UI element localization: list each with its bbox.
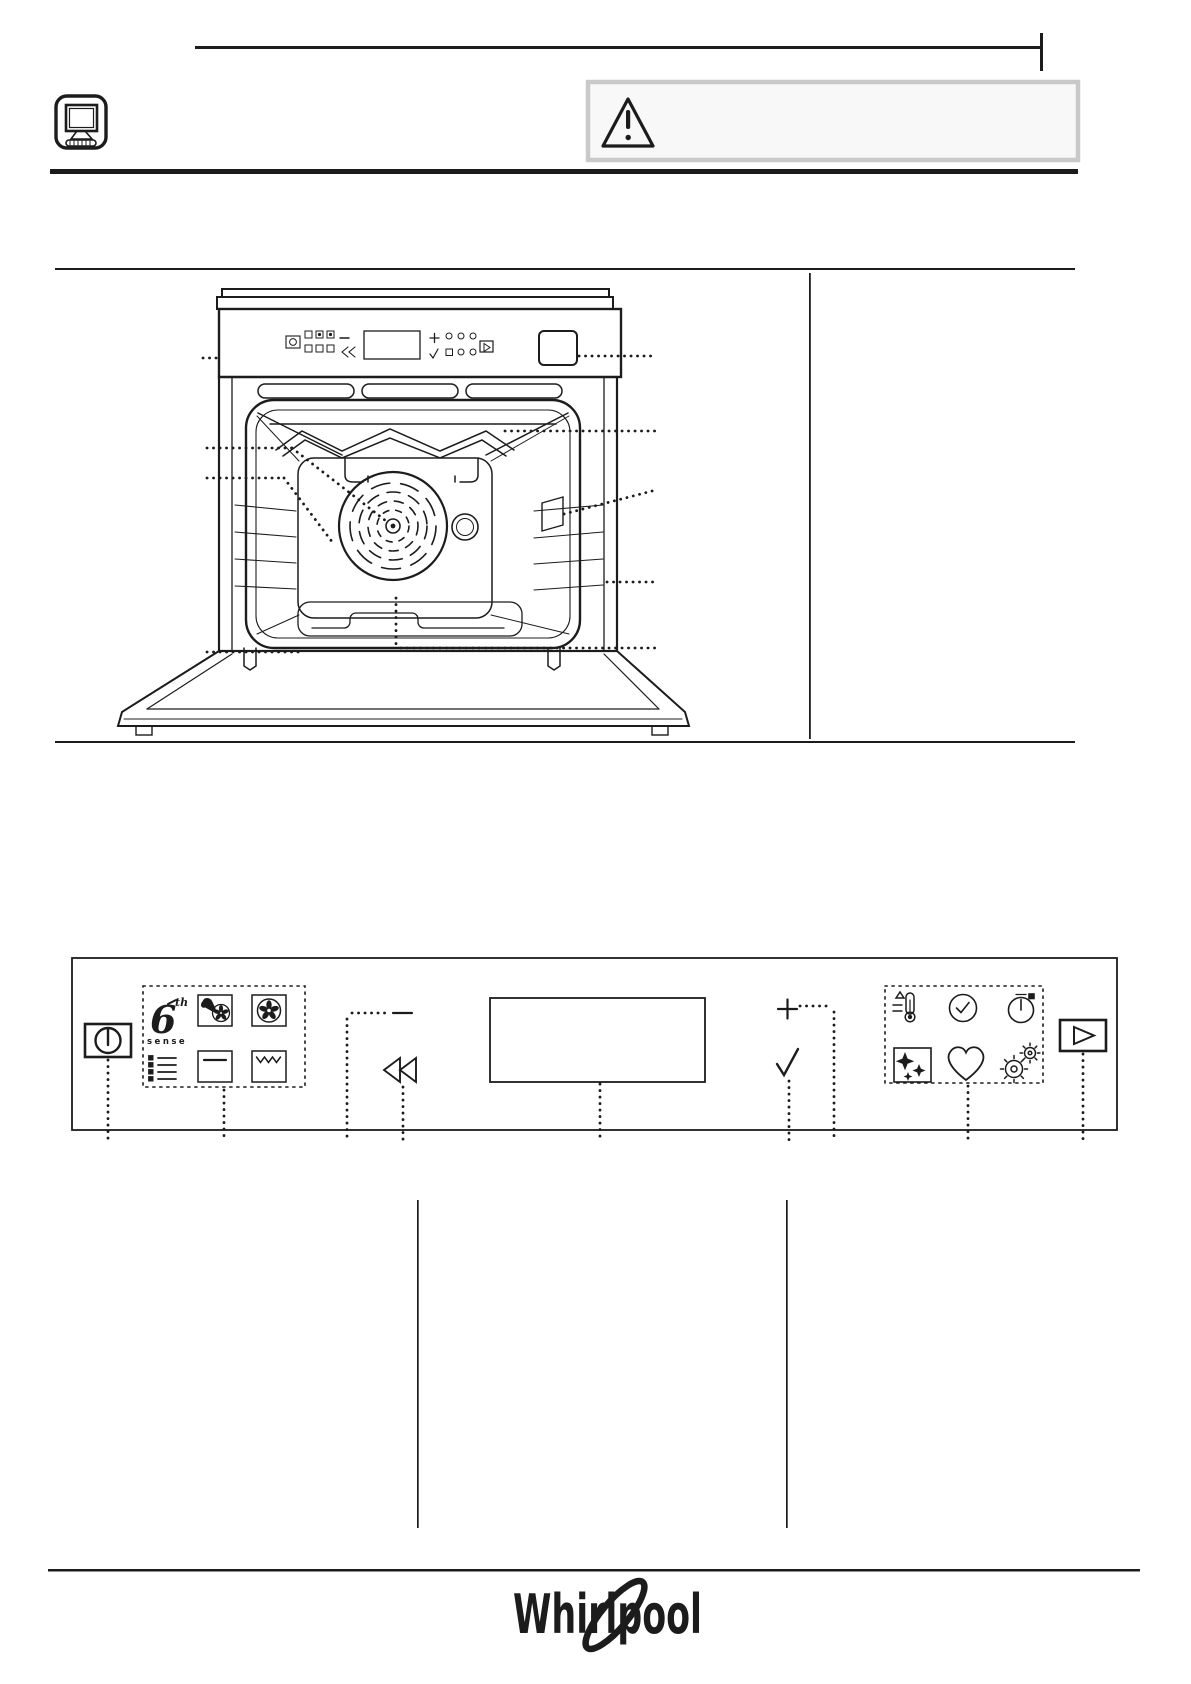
vent-slots bbox=[258, 384, 562, 398]
grill-icon bbox=[252, 1051, 286, 1082]
display-window bbox=[490, 998, 705, 1082]
confirm-button bbox=[777, 1049, 798, 1075]
panel-outline bbox=[72, 958, 1117, 1130]
svg-text:sense: sense bbox=[147, 1037, 187, 1047]
functions-group: 6 th sense bbox=[143, 986, 305, 1087]
svg-text:th: th bbox=[175, 996, 188, 1009]
temperature-icon bbox=[893, 992, 915, 1022]
oven-door bbox=[118, 651, 689, 735]
top-rule bbox=[195, 46, 1042, 49]
menu-list-icon bbox=[149, 1056, 176, 1081]
oven-cavity bbox=[246, 400, 580, 648]
diagram-column-divider bbox=[809, 273, 811, 739]
self-clean-icon bbox=[894, 1048, 931, 1082]
whirlpool-logo: Whirlpool bbox=[513, 1574, 702, 1657]
legend-column-divider-left bbox=[417, 1200, 419, 1528]
section-rule-1 bbox=[55, 268, 1075, 270]
page-header bbox=[50, 33, 1078, 174]
oven-control-strip bbox=[219, 309, 621, 377]
bottom-heating-element bbox=[298, 602, 522, 636]
oven-lamp bbox=[452, 514, 478, 540]
favourites-icon bbox=[949, 1047, 984, 1080]
fan-cooking-icon bbox=[252, 995, 286, 1026]
section-rule-2 bbox=[55, 741, 1075, 743]
svg-text:6: 6 bbox=[150, 997, 176, 1042]
grill-heating-element bbox=[258, 413, 568, 482]
back-button bbox=[384, 1058, 416, 1082]
control-panel-diagram: 6 th sense bbox=[72, 958, 1117, 1141]
top-rule-tick bbox=[1040, 33, 1043, 71]
fan-with-round-plate bbox=[339, 472, 447, 580]
options-group bbox=[885, 986, 1043, 1083]
legend-column-divider-right bbox=[786, 1200, 788, 1528]
assisted-cooking-icon bbox=[198, 995, 232, 1026]
start-button bbox=[1060, 1020, 1106, 1051]
monitor-icon bbox=[56, 96, 106, 148]
side-opening bbox=[542, 497, 563, 531]
conventional-heat-icon bbox=[198, 1051, 232, 1082]
mini-display bbox=[364, 331, 420, 359]
footer-rule bbox=[48, 1569, 1140, 1572]
plus-button bbox=[778, 1000, 797, 1019]
mini-option-icons bbox=[446, 333, 476, 356]
mini-function-icons bbox=[305, 331, 334, 352]
header-rule bbox=[50, 169, 1078, 174]
oven-diagram bbox=[118, 289, 689, 735]
timer-icon bbox=[1009, 994, 1035, 1023]
six-sense-logo: 6 th sense bbox=[147, 996, 188, 1047]
oven-top-cap bbox=[222, 289, 609, 297]
manual-page-artwork: 6 th sense bbox=[0, 0, 1191, 1684]
clock-icon bbox=[950, 995, 977, 1022]
power-button bbox=[85, 1024, 131, 1057]
identification-plate bbox=[539, 331, 577, 365]
warning-box bbox=[588, 82, 1078, 160]
settings-icon bbox=[1001, 1043, 1040, 1082]
